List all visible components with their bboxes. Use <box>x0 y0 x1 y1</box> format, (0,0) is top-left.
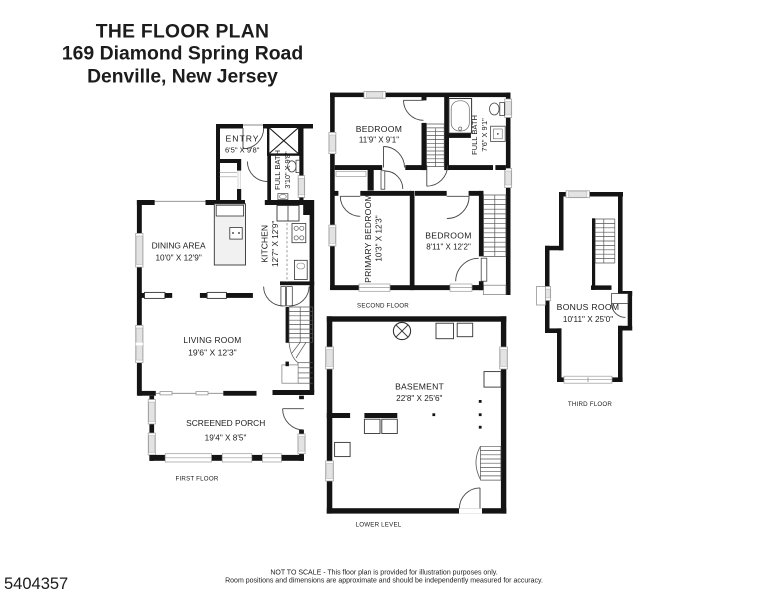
svg-text:PRIMARY BEDROOM: PRIMARY BEDROOM <box>363 194 373 283</box>
svg-text:SECOND FLOOR: SECOND FLOOR <box>357 303 409 310</box>
svg-text:FIRST FLOOR: FIRST FLOOR <box>176 476 219 483</box>
svg-text:BEDROOM: BEDROOM <box>356 124 403 134</box>
svg-text:22'8" X 25'6": 22'8" X 25'6" <box>396 394 442 403</box>
svg-text:10'0" X 12'9": 10'0" X 12'9" <box>155 254 201 263</box>
svg-text:169 Diamond Spring Road: 169 Diamond Spring Road <box>62 43 303 65</box>
svg-text:3'10" X 9'8": 3'10" X 9'8" <box>283 151 292 189</box>
svg-text:10'11" X 25'0": 10'11" X 25'0" <box>563 315 613 324</box>
svg-text:Room positions and dimensions: Room positions and dimensions are approx… <box>225 578 543 585</box>
svg-text:19'6" X 12'3": 19'6" X 12'3" <box>188 347 237 357</box>
svg-text:THE FLOOR PLAN: THE FLOOR PLAN <box>96 21 269 42</box>
svg-text:NOT TO SCALE - This floor plan: NOT TO SCALE - This floor plan is provid… <box>270 570 497 577</box>
svg-text:12'7" X 12'9": 12'7" X 12'9" <box>271 221 280 267</box>
svg-text:6'5" X 9'8": 6'5" X 9'8" <box>225 146 260 155</box>
svg-text:LOWER LEVEL: LOWER LEVEL <box>356 522 402 529</box>
svg-text:11'9" X 9'1": 11'9" X 9'1" <box>359 136 399 145</box>
svg-text:BONUS ROOM: BONUS ROOM <box>557 302 620 312</box>
svg-text:SCREENED PORCH: SCREENED PORCH <box>186 418 265 428</box>
svg-text:FULL BATH: FULL BATH <box>470 115 479 155</box>
svg-text:KITCHEN: KITCHEN <box>259 225 269 263</box>
svg-text:19'4" X 8'5": 19'4" X 8'5" <box>205 434 247 443</box>
svg-text:10'3" X 12'3": 10'3" X 12'3" <box>375 215 384 261</box>
svg-text:BASEMENT: BASEMENT <box>395 382 444 392</box>
svg-text:5404357: 5404357 <box>4 575 68 593</box>
svg-text:Denville, New Jersey: Denville, New Jersey <box>87 66 278 87</box>
svg-text:FULL BATH: FULL BATH <box>273 150 282 190</box>
svg-text:8'11" X 12'2": 8'11" X 12'2" <box>426 243 471 252</box>
svg-text:BEDROOM: BEDROOM <box>425 231 472 241</box>
svg-text:THIRD FLOOR: THIRD FLOOR <box>568 401 612 408</box>
svg-text:ENTRY: ENTRY <box>226 134 260 144</box>
svg-text:DINING AREA: DINING AREA <box>152 240 206 250</box>
svg-text:LIVING ROOM: LIVING ROOM <box>183 335 241 345</box>
svg-text:7'6" X 9'1": 7'6" X 9'1" <box>480 118 489 152</box>
